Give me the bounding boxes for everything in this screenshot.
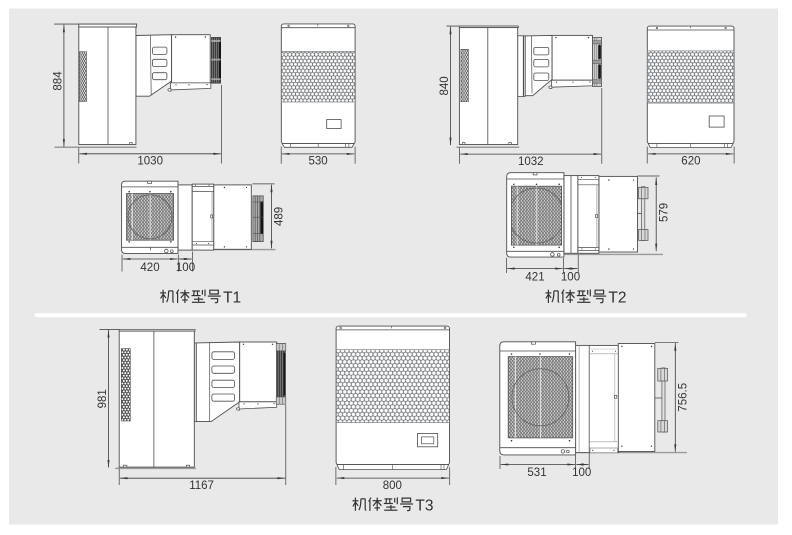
svg-text:884: 884: [53, 71, 65, 91]
svg-text:620: 620: [681, 156, 700, 168]
svg-text:1032: 1032: [518, 156, 544, 168]
svg-text:579: 579: [658, 203, 670, 222]
svg-text:T1: T1: [223, 290, 241, 307]
svg-text:100: 100: [176, 262, 195, 274]
svg-text:981: 981: [97, 389, 109, 408]
svg-text:100: 100: [572, 467, 591, 479]
svg-text:489: 489: [274, 207, 286, 226]
svg-text:T3: T3: [415, 498, 433, 515]
svg-text:530: 530: [309, 156, 328, 168]
svg-text:421: 421: [525, 271, 544, 283]
svg-text:531: 531: [527, 467, 546, 479]
svg-text:1030: 1030: [137, 156, 163, 168]
svg-text:800: 800: [383, 480, 402, 492]
svg-text:T2: T2: [608, 290, 626, 307]
svg-text:420: 420: [140, 262, 159, 274]
svg-text:100: 100: [561, 271, 580, 283]
svg-text:840: 840: [439, 76, 451, 95]
svg-text:1167: 1167: [189, 480, 214, 492]
svg-text:756.5: 756.5: [678, 383, 690, 412]
